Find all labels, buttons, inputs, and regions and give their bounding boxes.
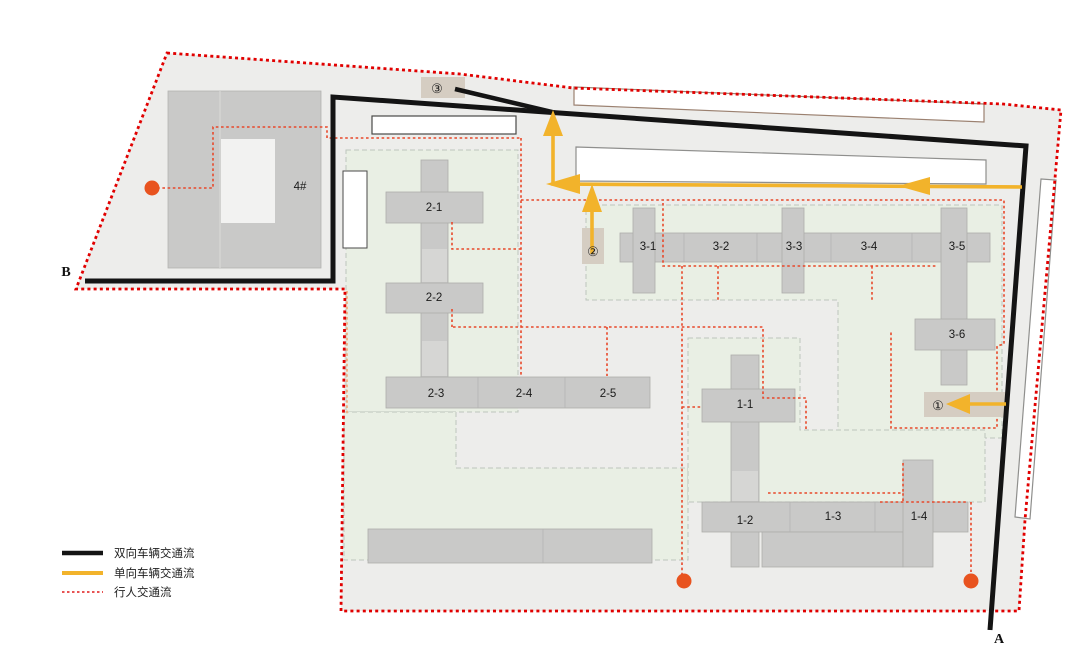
group1-connector — [732, 471, 758, 501]
strip-center — [372, 116, 516, 134]
building-label-1-1: 1-1 — [737, 399, 754, 411]
entrance-dot-south — [677, 574, 692, 589]
building-label-2-2: 2-2 — [426, 292, 443, 304]
entrance-dot-west — [145, 181, 160, 196]
building-1-row-lower — [762, 532, 903, 567]
gate-1-marker: ① — [932, 398, 944, 413]
group2-connector-1 — [422, 249, 447, 282]
entrance-dot-southeast — [964, 574, 979, 589]
group2-connector-2 — [422, 341, 447, 376]
site-plan-canvas: 4# 2-1 2-2 2-3 2-4 2-5 3-1 3-2 3-3 3-4 3… — [0, 0, 1084, 666]
building-label-2-4: 2-4 — [516, 388, 533, 400]
building-label-3-1: 3-1 — [640, 241, 657, 253]
building-label-2-5: 2-5 — [600, 388, 617, 400]
building-label-3-6: 3-6 — [949, 329, 966, 341]
building-bottom-block — [368, 529, 652, 563]
building-label-2-1: 2-1 — [426, 202, 443, 214]
legend-label-two-way: 双向车辆交通流 — [114, 546, 195, 560]
group1-spine — [731, 355, 759, 567]
building-label-2-3: 2-3 — [428, 388, 445, 400]
exit-a-marker: A — [994, 632, 1005, 647]
strip-left-small — [343, 171, 367, 248]
site-plan-svg: 4# 2-1 2-2 2-3 2-4 2-5 3-1 3-2 3-3 3-4 3… — [0, 0, 1084, 666]
building-label-1-3: 1-3 — [825, 511, 842, 523]
building-label-3-5: 3-5 — [949, 241, 966, 253]
building-label-3-3: 3-3 — [786, 241, 803, 253]
building-4-courtyard — [221, 139, 275, 223]
gate-2-marker: ② — [587, 244, 599, 259]
building-label-1-2: 1-2 — [737, 515, 754, 527]
building-label-3-2: 3-2 — [713, 241, 730, 253]
gate-3-marker: ③ — [431, 81, 443, 96]
building-4 — [168, 91, 321, 268]
building-label-1-4: 1-4 — [911, 511, 928, 523]
building-3-row — [620, 233, 990, 262]
legend: 双向车辆交通流 单向车辆交通流 行人交通流 — [62, 546, 195, 599]
exit-b-marker: B — [61, 265, 70, 280]
building-label-3-4: 3-4 — [861, 241, 878, 253]
building-label-4: 4# — [294, 181, 307, 193]
legend-label-one-way: 单向车辆交通流 — [114, 566, 195, 580]
legend-label-pedestrian: 行人交通流 — [114, 585, 172, 599]
building-3-5-stem — [941, 208, 967, 385]
